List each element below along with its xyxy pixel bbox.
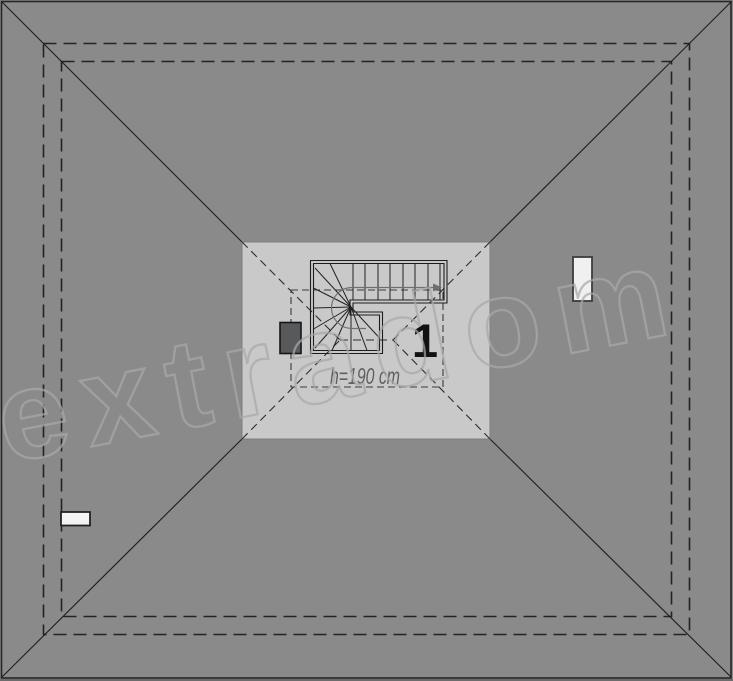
floor-plan-drawing: h=190 cm 1 extradom — [0, 0, 733, 681]
attic-floor-plan: h=190 cm 1 extradom — [0, 0, 733, 681]
roof-window-bottom-left — [61, 512, 90, 526]
